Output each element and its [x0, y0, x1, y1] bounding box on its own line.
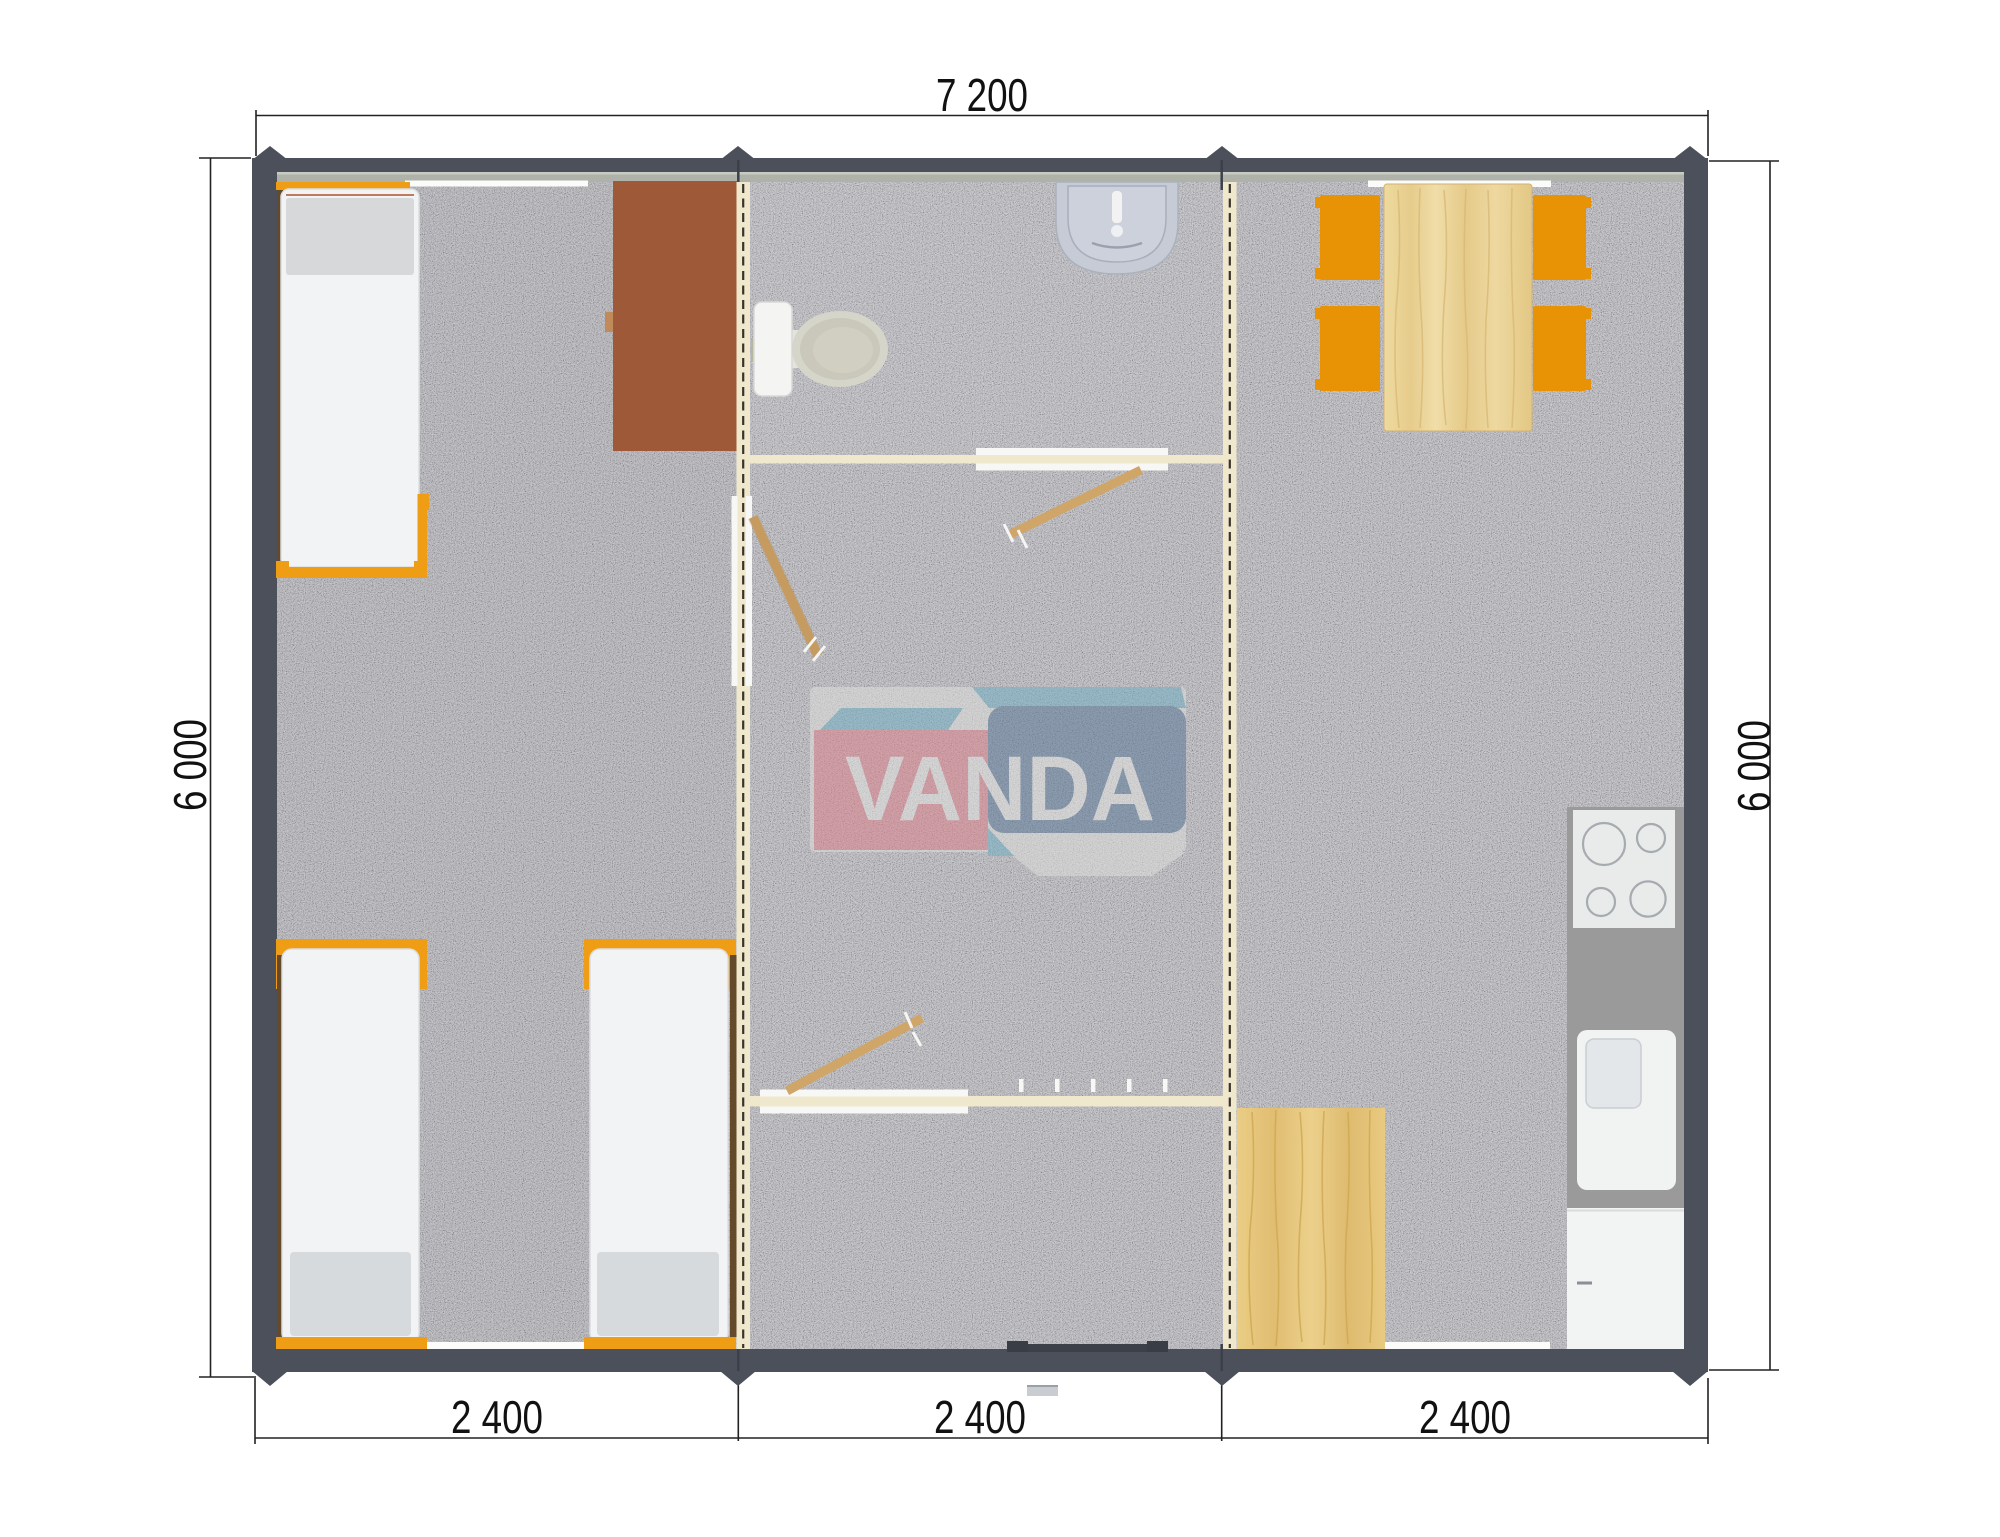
- svg-text:7 200: 7 200: [936, 69, 1028, 121]
- svg-text:2 400: 2 400: [451, 1391, 543, 1443]
- svg-text:6 000: 6 000: [1728, 720, 1780, 812]
- svg-text:VANDA: VANDA: [845, 738, 1155, 840]
- svg-text:6 000: 6 000: [164, 719, 216, 811]
- svg-text:2 400: 2 400: [1419, 1391, 1511, 1443]
- svg-text:2 400: 2 400: [934, 1391, 1026, 1443]
